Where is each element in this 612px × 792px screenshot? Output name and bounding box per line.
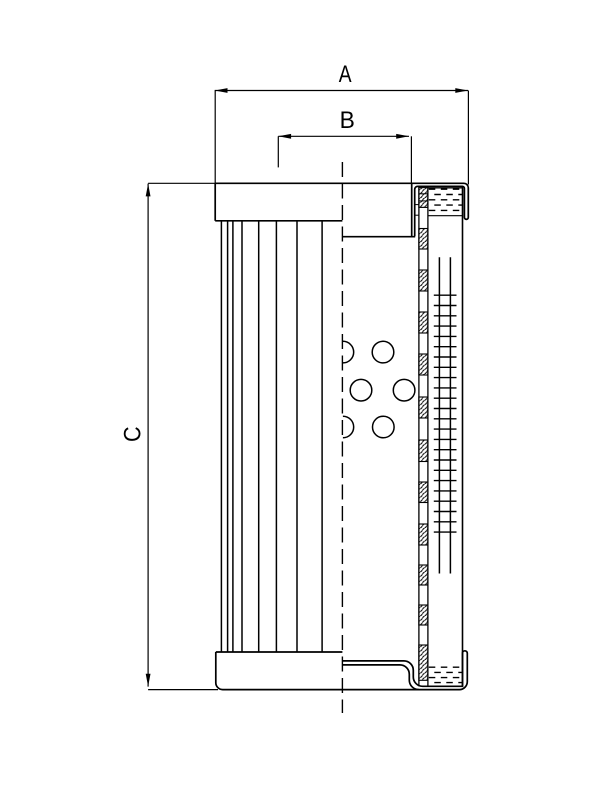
svg-text:C: C: [118, 426, 145, 442]
svg-text:B: B: [340, 106, 355, 133]
svg-text:A: A: [339, 60, 352, 88]
